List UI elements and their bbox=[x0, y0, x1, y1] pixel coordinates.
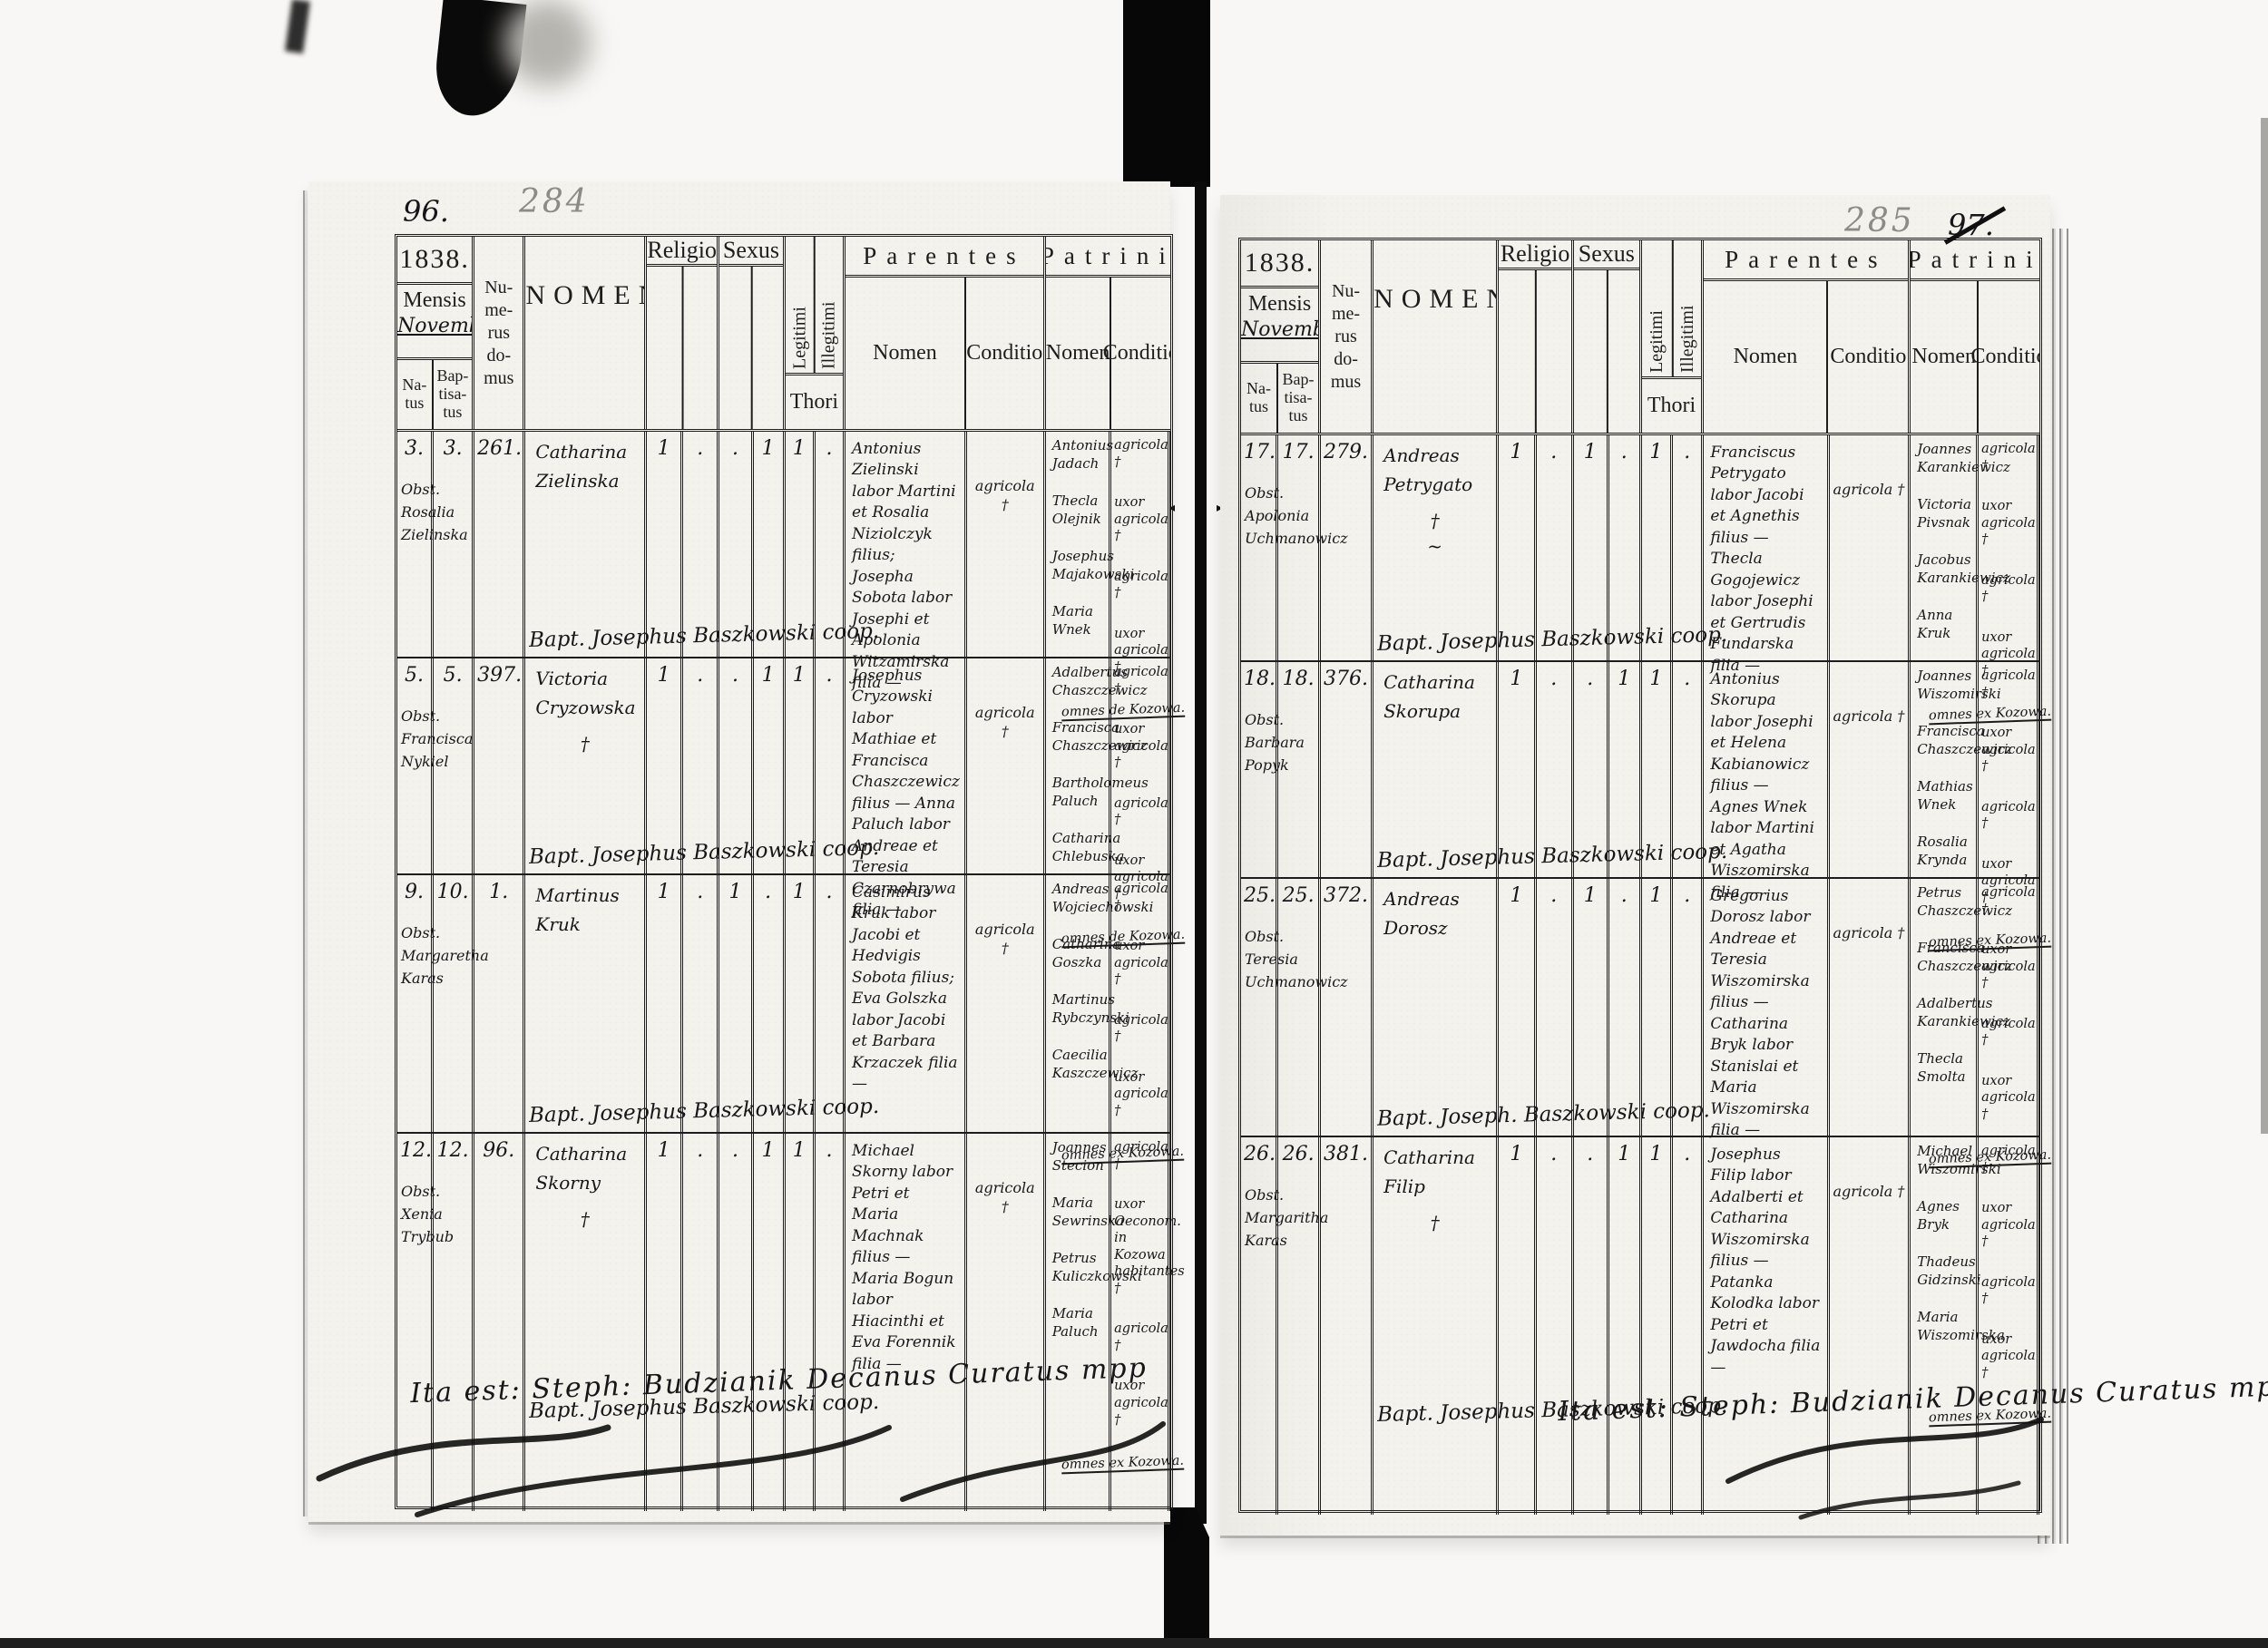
religio-label: Religio bbox=[1499, 240, 1571, 270]
numerus-domus-cell: 1. bbox=[474, 875, 525, 1132]
parents-cell: Gregorius Dorosz labor Andreae et Teresi… bbox=[1704, 879, 1829, 1136]
illegitimi-tick: . bbox=[1684, 441, 1690, 463]
column-sexus: Sexus Puer Puella bbox=[1574, 240, 1642, 433]
nomen-cell: Victoria Cryzowska † bbox=[525, 658, 647, 873]
obstetrix-note: Obst. Francisca Nykiel bbox=[401, 706, 488, 773]
godparent-conditio: uxor agricola † bbox=[1114, 1378, 1165, 1429]
page-number-pencil: 284 bbox=[519, 183, 590, 220]
binding-gutter-bottom bbox=[1164, 1507, 1209, 1643]
illegitimi-label: Illegitimi bbox=[814, 237, 843, 373]
puella-tick: . bbox=[1621, 441, 1628, 463]
godparent-name: Francisca Chaszczewicz bbox=[1913, 940, 1973, 975]
register-table: 1838. Mensis November Na- tus Bap- tisa-… bbox=[1238, 238, 2042, 1513]
child-name: Andreas Dorosz bbox=[1376, 884, 1493, 942]
catholica-label: Catholica bbox=[1499, 270, 1535, 433]
natus-day: 12. bbox=[400, 1139, 428, 1162]
obstetrix-note: Obst. Barbara Popyk bbox=[1245, 709, 1335, 776]
scan-artifact-smudge bbox=[504, 0, 591, 86]
nomen-cell: Catharina Skorny † bbox=[525, 1134, 647, 1511]
puer-cell: 1 bbox=[719, 875, 753, 1132]
illegitimi-tick: . bbox=[826, 881, 832, 903]
aut-alia-label: Aut Alia bbox=[1535, 270, 1571, 433]
godparent-name: Mathias Wnek bbox=[1913, 778, 1973, 814]
column-mensis: 1838. Mensis November Na- tus Bap- tisa-… bbox=[1241, 240, 1321, 433]
obstetrix-note: Obst. Apolonia Uchmanowicz bbox=[1245, 483, 1335, 550]
patrini-nomen-label: Nomen bbox=[1046, 278, 1110, 429]
baptisatus-day: 25. bbox=[1281, 884, 1315, 907]
puella-tick: 1 bbox=[762, 437, 775, 460]
puer-label: Puer bbox=[1574, 270, 1607, 433]
scan-artifact-mark bbox=[285, 0, 310, 54]
year-label: 1838. bbox=[1241, 240, 1318, 288]
numerus-domus-label: Nu- me- rus do- mus bbox=[1321, 240, 1371, 433]
godparents-names-cell: Andreas Wojciechowski Catharina Goszka M… bbox=[1046, 875, 1111, 1132]
godparent-conditio: uxor agricola † bbox=[1981, 941, 2034, 992]
aut-alia-tick: . bbox=[1550, 884, 1557, 907]
natus-day: 26. bbox=[1244, 1143, 1273, 1165]
parents-conditio: agricola † bbox=[1833, 1183, 1906, 1202]
catholica-label: Catholica bbox=[647, 267, 682, 429]
aut-alia-cell: . bbox=[1537, 1137, 1574, 1515]
parents-conditio-cell: agricola † bbox=[1830, 879, 1911, 1136]
patrini-nomen-label: Nomen bbox=[1911, 281, 1977, 433]
godparent-name: Thecla Smolta bbox=[1913, 1050, 1973, 1086]
legitimi-label: Legitimi bbox=[1642, 240, 1672, 376]
godparent-name: Andreas Wojciechowski bbox=[1049, 881, 1106, 916]
illegitimi-cell: . bbox=[816, 875, 846, 1132]
child-name: Catharina Skorny bbox=[528, 1139, 641, 1197]
godparent-name: Francisca Chaszczewicz bbox=[1049, 719, 1106, 755]
legitimi-cell: 1 bbox=[1642, 1137, 1673, 1515]
godparent-name: Adalbertus Karankiewicz bbox=[1913, 995, 1973, 1030]
puer-tick: . bbox=[732, 1139, 738, 1162]
column-nomen: NOMEN bbox=[525, 237, 647, 429]
obstetrix-note: Obst. Margaritha Karas bbox=[1245, 1185, 1335, 1252]
legitimi-cell: 1 bbox=[1642, 879, 1673, 1136]
legitimi-tick: 1 bbox=[793, 664, 806, 687]
legitimi-tick: 1 bbox=[793, 437, 806, 460]
legitimi-label: Legitimi bbox=[786, 237, 815, 373]
godparents-conditio-cell: agricola † uxor agricola † agricola † ux… bbox=[1979, 662, 2039, 877]
house-number: 381. bbox=[1324, 1143, 1368, 1165]
puella-tick: 1 bbox=[1618, 1143, 1630, 1165]
puella-cell: . bbox=[754, 875, 786, 1132]
godparent-conditio: agricola † bbox=[1114, 1321, 1165, 1354]
baptism-record-row: 3. Obst. Rosalia Zielinska 3. 261. Catha… bbox=[397, 432, 1170, 657]
aut-alia-cell: . bbox=[683, 875, 719, 1132]
baptism-record-row: 18. Obst. Barbara Popyk 18. 376. Cathari… bbox=[1241, 660, 2039, 877]
godparent-name: Anna Kruk bbox=[1913, 607, 1973, 642]
gutter-ink-marks: ◂▸ bbox=[1168, 501, 1223, 519]
godparent-name: Jacobus Karankiewicz bbox=[1913, 551, 1973, 587]
child-name: Catharina Filip bbox=[1376, 1143, 1493, 1201]
natus-cell: 26. Obst. Margaritha Karas bbox=[1241, 1137, 1278, 1515]
natus-label: Na- tus bbox=[397, 360, 432, 429]
godparent-conditio: agricola † bbox=[1114, 437, 1165, 471]
puer-tick: . bbox=[732, 437, 738, 460]
sexus-label: Sexus bbox=[719, 237, 782, 267]
godparent-conditio: agricola † bbox=[1981, 1143, 2034, 1176]
godparents-conditio-cell: agricola † uxor agricola † agricola † ux… bbox=[1111, 658, 1170, 873]
godparent-name: Francisca Chaszczewicz bbox=[1913, 723, 1973, 758]
thori-label: Thori bbox=[786, 375, 843, 429]
patrini-conditio-label: Conditio bbox=[1110, 278, 1170, 429]
nomen-cell: Catharina Skorupa bbox=[1374, 662, 1499, 877]
godparent-conditio: uxor agricola † bbox=[1981, 725, 2034, 775]
thori-label: Thori bbox=[1642, 379, 1702, 433]
godparent-name: Victoria Pivsnak bbox=[1913, 496, 1973, 531]
illegitimi-cell: . bbox=[816, 1134, 846, 1511]
catholica-cell: 1 bbox=[647, 432, 683, 657]
catholica-cell: 1 bbox=[647, 875, 683, 1132]
mensis-block: Mensis November bbox=[397, 285, 472, 360]
column-nomen: NOMEN bbox=[1374, 240, 1499, 433]
godparents-names-cell: Joannes Karankiewicz Victoria Pivsnak Ja… bbox=[1911, 435, 1979, 660]
child-name: Catharina Zielinska bbox=[528, 437, 641, 495]
godparent-conditio: agricola † bbox=[1114, 1012, 1165, 1046]
puella-tick: 1 bbox=[1618, 668, 1630, 690]
child-name: Martinus Kruk bbox=[528, 881, 641, 939]
house-number: 96. bbox=[477, 1139, 520, 1162]
natus-day: 5. bbox=[400, 664, 428, 687]
puer-tick: . bbox=[732, 664, 738, 687]
godparent-name: Maria Wnek bbox=[1049, 603, 1106, 639]
godparent-name: Thadeus Gidzinski bbox=[1913, 1253, 1973, 1289]
sexus-label: Sexus bbox=[1574, 240, 1639, 270]
baptisatus-cell: 10. bbox=[434, 875, 474, 1132]
omnes-note: omnes ex Kozowa. bbox=[1061, 1454, 1185, 1475]
house-number: 1. bbox=[477, 881, 520, 903]
parents-conditio: agricola † bbox=[970, 1179, 1041, 1217]
parents-names: Casimirus Kruk labor Jacobi et Hedvigis … bbox=[848, 881, 962, 1097]
godparent-conditio: uxor agricola † bbox=[1114, 721, 1165, 772]
parentes-label: Parentes bbox=[1704, 240, 1908, 281]
catholica-cell: 1 bbox=[1499, 879, 1536, 1136]
catholica-tick: 1 bbox=[1510, 1143, 1522, 1165]
godparent-conditio: uxor agricola † bbox=[1114, 1069, 1165, 1120]
register-page-right: 285 97. 1838. Mensis November Na- tus Ba… bbox=[1220, 195, 2050, 1536]
baptism-record-row: 9. Obst. Margaretha Karas 10. 1. Martinu… bbox=[397, 873, 1170, 1132]
godparents-conditio-cell: agricola † uxor agricola † agricola † ux… bbox=[1979, 435, 2039, 660]
obstetrix-note: Obst. Margaretha Karas bbox=[401, 922, 488, 990]
child-name: Andreas Petrygato bbox=[1376, 441, 1493, 499]
legitimi-tick: 1 bbox=[1649, 668, 1662, 690]
natus-cell: 3. Obst. Rosalia Zielinska bbox=[397, 432, 434, 657]
baptisatus-day: 3. bbox=[436, 437, 469, 460]
aut-alia-tick: . bbox=[697, 881, 703, 903]
godparent-name: Joannes Wiszomirski bbox=[1913, 668, 1973, 703]
binding-gutter-top bbox=[1123, 0, 1210, 187]
column-legitimi: Legitimi Illegitimi Thori bbox=[786, 237, 846, 429]
parents-names: Josephus Filip labor Adalberti et Cathar… bbox=[1706, 1143, 1823, 1380]
illegitimi-cell: . bbox=[1673, 879, 1704, 1136]
godparent-name: Joannes Stecion bbox=[1049, 1139, 1106, 1175]
column-parentes: Parentes Nomen Conditio bbox=[846, 237, 1046, 429]
column-religio: Religio Catholica Aut Alia bbox=[1499, 240, 1574, 433]
godparent-name: Catharina Chlebuska bbox=[1049, 830, 1106, 865]
catholica-cell: 1 bbox=[1499, 435, 1536, 660]
baptism-record-row: 25. Obst. Teresia Uchmanowicz 25. 372. A… bbox=[1241, 877, 2039, 1136]
puer-tick: . bbox=[1587, 668, 1593, 690]
nomen-label: NOMEN bbox=[525, 280, 644, 311]
parentes-nomen-label: Nomen bbox=[846, 278, 964, 429]
obstetrix-note: Obst. Teresia Uchmanowicz bbox=[1245, 926, 1335, 993]
natus-cell: 17. Obst. Apolonia Uchmanowicz bbox=[1241, 435, 1278, 660]
natus-day: 17. bbox=[1244, 441, 1273, 463]
parents-conditio-cell: agricola † bbox=[1830, 435, 1911, 660]
aut-alia-tick: . bbox=[697, 664, 703, 687]
binding-gutter-line bbox=[1195, 181, 1207, 1524]
legitimi-cell: 1 bbox=[786, 1134, 816, 1511]
godparents-names-cell: Joannes Wiszomirski Francisca Chaszczewi… bbox=[1911, 662, 1979, 877]
illegitimi-tick: . bbox=[1684, 668, 1690, 690]
folio-number-ink: 96. bbox=[403, 194, 449, 229]
godparent-conditio: agricola † bbox=[1981, 1274, 2034, 1308]
baptism-record-row: 5. Obst. Francisca Nykiel 5. 397. Victor… bbox=[397, 657, 1170, 873]
natus-cell: 12. Obst. Xenia Trybub bbox=[397, 1134, 434, 1511]
nomen-cell: Catharina Zielinska bbox=[525, 432, 647, 657]
catholica-cell: 1 bbox=[1499, 1137, 1536, 1515]
obstetrix-note: Obst. Xenia Trybub bbox=[401, 1181, 488, 1248]
parents-conditio-cell: agricola † bbox=[967, 875, 1046, 1132]
godparent-name: Martinus Rybczynski bbox=[1049, 991, 1106, 1027]
aut-alia-tick: . bbox=[1550, 668, 1557, 690]
puella-tick: . bbox=[1621, 884, 1628, 907]
puella-cell: 1 bbox=[754, 1134, 786, 1511]
house-number: 376. bbox=[1324, 668, 1368, 690]
illegitimi-label: Illegitimi bbox=[1672, 240, 1702, 376]
column-numerus-domus: Nu- me- rus do- mus bbox=[1321, 240, 1374, 433]
godparents-conditio-cell: agricola † uxor Oeconom. in Kozowa habit… bbox=[1111, 1134, 1170, 1511]
baptisatus-day: 18. bbox=[1281, 668, 1315, 690]
godparents-names-cell: Michael Wiszomirski Agnes Bryk Thadeus G… bbox=[1911, 1137, 1979, 1515]
illegitimi-tick: . bbox=[826, 1139, 832, 1162]
godparent-conditio: uxor Oeconom. in Kozowa habitantes † bbox=[1114, 1196, 1165, 1297]
illegitimi-tick: . bbox=[1684, 1143, 1690, 1165]
godparent-name: Josephus Majakowski bbox=[1049, 548, 1106, 583]
godparent-name: Caecilia Kaszczewicz bbox=[1049, 1047, 1106, 1082]
parents-conditio: agricola † bbox=[1833, 481, 1906, 500]
godparent-conditio: agricola † bbox=[1114, 881, 1165, 914]
puer-cell: . bbox=[719, 1134, 753, 1511]
godparent-name: Antonius Jadach bbox=[1049, 437, 1106, 473]
puella-label: Puella bbox=[751, 267, 783, 429]
parentes-label: Parentes bbox=[846, 237, 1043, 278]
cross-mark: † bbox=[1376, 1210, 1493, 1235]
godparent-conditio: agricola † bbox=[1114, 1139, 1165, 1173]
natus-label: Na- tus bbox=[1241, 364, 1276, 433]
parents-conditio: agricola † bbox=[970, 921, 1041, 959]
column-sexus: Sexus Puer Puella bbox=[719, 237, 785, 429]
godparent-name: Maria Wiszomirska bbox=[1913, 1309, 1973, 1344]
column-parentes: Parentes Nomen Conditio bbox=[1704, 240, 1911, 433]
nomen-cell: Andreas Petrygato † ~ bbox=[1374, 435, 1499, 660]
godparent-name: Thecla Olejnik bbox=[1049, 492, 1106, 528]
godparents-names-cell: Joannes Stecion Maria Sewrinska Petrus K… bbox=[1046, 1134, 1111, 1511]
illegitimi-cell: . bbox=[1673, 1137, 1704, 1515]
godparent-conditio: agricola † bbox=[1981, 668, 2034, 701]
natus-cell: 25. Obst. Teresia Uchmanowicz bbox=[1241, 879, 1278, 1136]
nomen-label: NOMEN bbox=[1374, 284, 1496, 315]
aut-alia-cell: . bbox=[1537, 879, 1574, 1136]
baptism-record-row: 17. Obst. Apolonia Uchmanowicz 17. 279. … bbox=[1241, 435, 2039, 660]
godparent-name: Petrus Chaszczewicz bbox=[1913, 884, 1973, 920]
catholica-tick: 1 bbox=[1510, 668, 1522, 690]
illegitimi-tick: . bbox=[826, 664, 832, 687]
catholica-tick: 1 bbox=[1510, 441, 1522, 463]
godparents-conditio-cell: agricola † uxor agricola † agricola † ux… bbox=[1111, 432, 1170, 657]
godparent-name: Agnes Bryk bbox=[1913, 1198, 1973, 1234]
natus-cell: 5. Obst. Francisca Nykiel bbox=[397, 658, 434, 873]
parents-conditio: agricola † bbox=[970, 704, 1041, 742]
puer-label: Puer bbox=[719, 267, 751, 429]
baptisatus-day: 10. bbox=[436, 881, 469, 903]
legitimi-tick: 1 bbox=[793, 881, 806, 903]
catholica-tick: 1 bbox=[1510, 884, 1522, 907]
natus-day: 18. bbox=[1244, 668, 1273, 690]
scan-bottom-edge bbox=[0, 1638, 2268, 1648]
puella-cell: 1 bbox=[1609, 1137, 1642, 1515]
parents-conditio-cell: agricola † bbox=[967, 1134, 1046, 1511]
parents-names: Antonius Skorupa labor Josephi et Helena… bbox=[1706, 668, 1823, 905]
puella-tick: . bbox=[765, 881, 771, 903]
table-header: 1838. Mensis November Na- tus Bap- tisa-… bbox=[397, 237, 1170, 432]
puella-label: Puella bbox=[1607, 270, 1639, 433]
legitimi-tick: 1 bbox=[1649, 884, 1662, 907]
aut-alia-cell: . bbox=[683, 1134, 719, 1511]
parents-cell: Josephus Filip labor Adalberti et Cathar… bbox=[1704, 1137, 1829, 1515]
illegitimi-tick: . bbox=[1684, 884, 1690, 907]
child-name: Catharina Skorupa bbox=[1376, 668, 1493, 726]
year-label: 1838. bbox=[397, 237, 472, 285]
godparent-name: Maria Sewrinska bbox=[1049, 1195, 1106, 1230]
parents-names: Gregorius Dorosz labor Andreae et Teresi… bbox=[1706, 884, 1823, 1143]
catholica-tick: 1 bbox=[658, 437, 670, 460]
godparents-conditio-cell: agricola † uxor agricola † agricola † ux… bbox=[1111, 875, 1170, 1132]
godparent-conditio: uxor agricola † bbox=[1981, 498, 2034, 549]
puella-tick: 1 bbox=[762, 1139, 775, 1162]
baptisatus-day: 17. bbox=[1281, 441, 1315, 463]
records-body: 17. Obst. Apolonia Uchmanowicz 17. 279. … bbox=[1241, 435, 2039, 1515]
aut-alia-label: Aut Alia bbox=[682, 267, 718, 429]
baptism-record-row: 12. Obst. Xenia Trybub 12. 96. Catharina… bbox=[397, 1132, 1170, 1511]
records-body: 3. Obst. Rosalia Zielinska 3. 261. Catha… bbox=[397, 432, 1170, 1511]
mensis-block: Mensis November bbox=[1241, 288, 1318, 364]
parents-conditio-cell: agricola † bbox=[967, 432, 1046, 657]
godparents-conditio-cell: agricola † uxor agricola † agricola † ux… bbox=[1979, 1137, 2039, 1515]
parents-conditio-cell: agricola † bbox=[1830, 662, 1911, 877]
parents-conditio-cell: agricola † bbox=[967, 658, 1046, 873]
godparents-names-cell: Adalbertus Chaszczewicz Francisca Chaszc… bbox=[1046, 658, 1111, 873]
nomen-cell: Catharina Filip † bbox=[1374, 1137, 1499, 1515]
baptisatus-label: Bap- tisa- tus bbox=[1276, 364, 1318, 433]
illegitimi-tick: . bbox=[826, 437, 832, 460]
legitimi-tick: 1 bbox=[793, 1139, 806, 1162]
godparent-name: Adalbertus Chaszczewicz bbox=[1049, 664, 1106, 699]
cross-mark: † bbox=[528, 1206, 641, 1232]
natus-cell: 18. Obst. Barbara Popyk bbox=[1241, 662, 1278, 877]
catholica-tick: 1 bbox=[658, 1139, 670, 1162]
column-patrini: Patrini Nomen Conditio bbox=[1046, 237, 1170, 429]
aut-alia-tick: . bbox=[1550, 1143, 1557, 1165]
godparent-conditio: agricola † bbox=[1114, 795, 1165, 829]
patrini-label: Patrini bbox=[1911, 240, 2039, 281]
baptism-record-row: 26. Obst. Margaritha Karas 26. 381. Cath… bbox=[1241, 1136, 2039, 1515]
puella-tick: 1 bbox=[762, 664, 775, 687]
child-name: Victoria Cryzowska bbox=[528, 664, 641, 722]
godparent-name: Catharina Goszka bbox=[1049, 936, 1106, 971]
parentes-conditio-label: Conditio bbox=[964, 278, 1043, 429]
godparent-conditio: agricola † bbox=[1114, 569, 1165, 602]
catholica-cell: 1 bbox=[647, 1134, 683, 1511]
godparent-name: Rosalia Krynda bbox=[1913, 834, 1973, 869]
godparent-conditio: agricola † bbox=[1981, 441, 2034, 474]
numerus-domus-cell: 372. bbox=[1321, 879, 1374, 1136]
register-scan: ◂▸ 96. 284 1838. Mensis November Na- tus… bbox=[0, 0, 2268, 1648]
puer-cell: . bbox=[1574, 1137, 1609, 1515]
column-religio: Religio Catholica Aut Alia bbox=[647, 237, 719, 429]
godparent-conditio: uxor agricola † bbox=[1114, 494, 1165, 545]
godparent-conditio: uxor agricola † bbox=[1981, 1073, 2034, 1124]
parents-names: Michael Skorny labor Petri et Maria Mach… bbox=[848, 1139, 962, 1377]
house-number: 279. bbox=[1324, 441, 1368, 463]
godparent-name: Joannes Karankiewicz bbox=[1913, 441, 1973, 476]
religio-label: Religio bbox=[647, 237, 717, 267]
godparent-name: Maria Paluch bbox=[1049, 1305, 1106, 1341]
register-table: 1838. Mensis November Na- tus Bap- tisa-… bbox=[395, 234, 1173, 1509]
catholica-tick: 1 bbox=[658, 664, 670, 687]
mensis-label: Mensis bbox=[397, 288, 472, 313]
month-handwritten: November bbox=[397, 315, 472, 337]
parents-cell: Michael Skorny labor Petri et Maria Mach… bbox=[846, 1134, 967, 1511]
godparent-conditio: uxor agricola † bbox=[1981, 1200, 2034, 1251]
baptisatus-cell: 25. bbox=[1278, 879, 1321, 1136]
month-handwritten: November bbox=[1241, 318, 1318, 341]
godparent-name: Petrus Kuliczkowski bbox=[1049, 1250, 1106, 1285]
parents-cell: Casimirus Kruk labor Jacobi et Hedvigis … bbox=[846, 875, 967, 1132]
column-legitimi: Legitimi Illegitimi Thori bbox=[1642, 240, 1705, 433]
legitimi-tick: 1 bbox=[1649, 1143, 1662, 1165]
aut-alia-tick: . bbox=[697, 1139, 703, 1162]
parents-conditio: agricola † bbox=[1833, 924, 1906, 943]
godparent-conditio: agricola † bbox=[1981, 1016, 2034, 1049]
mensis-label: Mensis bbox=[1241, 292, 1318, 317]
puer-tick: 1 bbox=[1584, 884, 1597, 907]
baptisatus-day: 12. bbox=[436, 1139, 469, 1162]
baptisatus-label: Bap- tisa- tus bbox=[432, 360, 473, 429]
puer-tick: . bbox=[1587, 1143, 1593, 1165]
godparents-conditio-cell: agricola † uxor agricola † agricola † ux… bbox=[1979, 879, 2039, 1136]
puer-cell: 1 bbox=[1574, 879, 1609, 1136]
natus-baptisatus-split: Na- tus Bap- tisa- tus bbox=[1241, 364, 1318, 433]
table-header: 1838. Mensis November Na- tus Bap- tisa-… bbox=[1241, 240, 2039, 435]
godparent-conditio: uxor agricola † bbox=[1114, 938, 1165, 989]
baptisatus-day: 26. bbox=[1281, 1143, 1315, 1165]
aut-alia-tick: . bbox=[697, 437, 703, 460]
puer-tick: 1 bbox=[728, 881, 741, 903]
godparent-conditio: agricola † bbox=[1981, 884, 2034, 918]
register-page-left: 96. 284 1838. Mensis November Na- tus Ba… bbox=[308, 181, 1170, 1522]
puer-tick: 1 bbox=[1584, 441, 1597, 463]
column-numerus-domus: Nu- me- rus do- mus bbox=[474, 237, 525, 429]
legitimi-tick: 1 bbox=[1649, 441, 1662, 463]
parents-conditio: agricola † bbox=[1833, 707, 1906, 726]
parentes-nomen-label: Nomen bbox=[1704, 281, 1826, 433]
page-number-pencil: 285 bbox=[1844, 202, 1915, 239]
legitimi-cell: 1 bbox=[786, 875, 816, 1132]
godparent-conditio: agricola † bbox=[1981, 799, 2034, 833]
natus-day: 3. bbox=[400, 437, 428, 460]
